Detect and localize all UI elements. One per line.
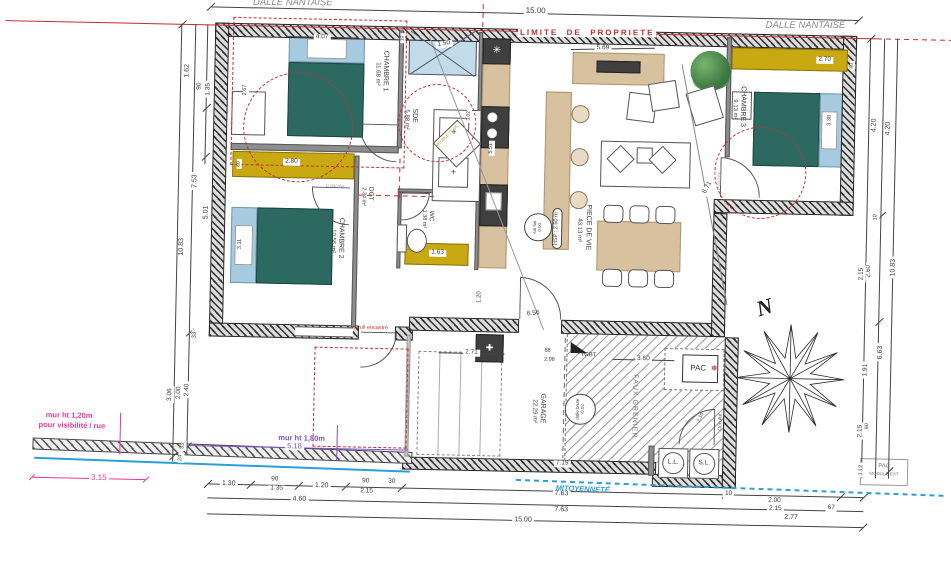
dim-line-right-mid xyxy=(875,39,885,479)
faucet-icon-2: + xyxy=(451,168,456,178)
dim-280-window: 2.80 xyxy=(283,159,300,166)
dim-right-420b: 4.20 xyxy=(884,120,892,138)
dim-left-1083: 10.83 xyxy=(178,236,186,258)
note-mur-120-line2: pour visibilité / rue xyxy=(38,421,105,430)
dim-bot-277: 2.77 xyxy=(782,514,800,522)
annotation-overlay: 15.00DALLE NANTAISELIMITE DE PROPRIETEDA… xyxy=(0,0,951,561)
dim-right-260: 2.60 xyxy=(866,263,873,280)
dim-208: 2.08 xyxy=(542,358,557,364)
dim-360: 3.60 xyxy=(635,356,652,363)
dim-569: 5.69 xyxy=(594,45,611,52)
room-wc-area: 1.38 m² xyxy=(420,210,426,229)
dim-60: 60 xyxy=(237,159,242,169)
tick xyxy=(201,152,210,161)
dim-270-window: 2.70 xyxy=(816,57,833,64)
tick xyxy=(202,103,211,112)
water-heater-icon: ✚ xyxy=(486,344,494,354)
note-pac: PAC xyxy=(690,364,706,373)
dim-719: 7.19 xyxy=(554,460,571,467)
dim-120-int: 1.20 xyxy=(476,289,483,305)
dim-top-1500: 15.00 xyxy=(524,7,548,16)
accessibility-circle-ch3 xyxy=(713,126,807,220)
room-chambre2-name: CHAMBRE 2 xyxy=(337,218,345,259)
note-portail: PORTAIL SECTIONNEL MOTORISE xyxy=(405,364,411,430)
dim-338: 3.38 xyxy=(827,113,833,128)
dim-right-215b: 2.15 xyxy=(857,423,864,440)
room-chambre1-area: 11.68 m² xyxy=(374,62,381,85)
dim-right-191: 1.91 xyxy=(863,362,870,379)
dim-right-663: 6.63 xyxy=(877,344,885,362)
room-dgt-area: 2.34 m² xyxy=(360,187,366,206)
dim-210-door: 2.10 xyxy=(697,412,706,423)
note-sol-fini: sol fini 0.00 xyxy=(524,213,553,242)
garage-grenier-split xyxy=(562,338,566,458)
dim-right-1083: 10.83 xyxy=(889,257,897,279)
room-chambre3-name: CHAMBRE 3 xyxy=(739,86,747,127)
dim-left-753: 7.53 xyxy=(191,172,199,190)
red-driveway-rect xyxy=(312,347,408,449)
tick xyxy=(875,318,884,327)
dim-line-right-inner xyxy=(861,38,871,478)
room-piece-de-vie-area: 43.13 m² xyxy=(576,218,583,242)
dryer-label: S.L. xyxy=(698,460,710,467)
dim-line-569 xyxy=(571,48,655,50)
pink-arrow xyxy=(119,413,121,455)
dim-302: 3.02 xyxy=(467,109,473,123)
pac-snowflake-icon: ❅ xyxy=(711,365,718,374)
room-sde-area: 5.88 m² xyxy=(403,109,410,129)
site-dalle-nantaise-left: DALLE NANTAISE xyxy=(253,0,333,8)
floor-plan-canvas: 15.00DALLE NANTAISELIMITE DE PROPRIETEDA… xyxy=(0,0,951,561)
note-tgbt: TGBT xyxy=(580,352,596,359)
red-service-line-v xyxy=(399,158,401,198)
dim-267: 2.67 xyxy=(243,83,249,98)
dim-bot-215r: 2.15 xyxy=(767,506,784,513)
faucet-icon-1: + xyxy=(451,128,456,138)
dim-271: 2.71 xyxy=(463,349,480,356)
dim-bot-67: 67 xyxy=(826,505,837,512)
pac-ext-label-1: PAC xyxy=(878,463,890,470)
dim-line-bottom-3 xyxy=(207,513,863,528)
dim-right-420a: 4.20 xyxy=(870,116,878,134)
north-letter: N xyxy=(754,294,776,321)
tick xyxy=(143,476,150,483)
dim-left-90: 90 xyxy=(196,81,203,92)
dim-right-112: 1.12 xyxy=(859,463,865,478)
dim-right-215: 2.15 xyxy=(859,266,866,283)
door-ref-ch2: P 80/204 xyxy=(326,184,344,189)
dim-left-162: 1.62 xyxy=(183,62,191,80)
dim-10-shower: 10 xyxy=(400,34,405,44)
room-chambre1-name: CHAMBRE 1 xyxy=(381,51,389,92)
room-faux-grenier-name: FAUX GRENIER xyxy=(630,374,639,438)
room-piece-de-vie-name: PIECE DE VIE xyxy=(584,204,592,250)
note-occulte: Occulté xyxy=(718,414,724,431)
dim-bot-763b: 7.63 xyxy=(552,506,570,514)
vmc-icon: ✳ xyxy=(492,46,501,57)
property-line xyxy=(5,20,877,40)
property-line-dash xyxy=(877,38,951,41)
dim-163-window: 1.63 xyxy=(429,250,446,257)
note-dalle-brute: dalle brute -0.02 xyxy=(565,393,597,425)
door-ref-ch3: P 80/204 xyxy=(718,172,723,190)
dim-bot-460: 4.60 xyxy=(290,496,308,504)
note-seuil-encastre: seuil encastré xyxy=(354,326,388,332)
pac-ext-label-2: MODULE EXT xyxy=(869,472,898,477)
dim-left-200: 2.00 xyxy=(176,384,183,401)
dim-left-306: 3.06 xyxy=(167,386,174,403)
dim-bot-1500: 15.00 xyxy=(512,516,534,524)
dim-bot-130: 1.30 xyxy=(220,480,238,488)
dim-right-90: 90 xyxy=(865,421,871,431)
dim-bot-30: 30 xyxy=(386,479,397,486)
dim-bot-215: 2.15 xyxy=(358,488,375,495)
dim-purple-518: 5.18 xyxy=(285,442,304,450)
note-hsp: HSP : 2.50 m xyxy=(552,208,563,249)
construction-diag-1 xyxy=(429,37,544,330)
dim-left-135: 1.35 xyxy=(205,81,212,98)
dim-bot-120: 1.20 xyxy=(313,482,331,490)
dim-left-501: 5.01 xyxy=(203,203,211,221)
room-dgt-name: DGT xyxy=(366,187,373,201)
room-chambre2-area: 10.56 m² xyxy=(329,229,336,253)
dim-88: 88 xyxy=(542,349,552,355)
dim-bot-135: 1.35 xyxy=(268,485,285,492)
dim-left-33: 33 xyxy=(192,330,199,341)
dim-right-10: 10 xyxy=(873,212,879,222)
dim-pink-315: 3.15 xyxy=(89,474,109,483)
dim-311: 3.11 xyxy=(238,237,244,251)
note-mur-120-line1: mur ht 1,20m xyxy=(46,411,93,420)
plan-rotated-wrapper: 15.00DALLE NANTAISELIMITE DE PROPRIETEDA… xyxy=(0,0,951,561)
dim-left-24: 24 xyxy=(178,453,184,463)
dim-left-240: 2.40 xyxy=(184,382,191,399)
room-garage-area: 22.29 m² xyxy=(531,399,538,423)
room-chambre3-area: 9.13 m² xyxy=(731,99,738,119)
site-dalle-nantaise-right: DALLE NANTAISE xyxy=(766,21,846,31)
dim-40: 40 xyxy=(850,61,855,71)
room-wc-name: WC xyxy=(427,211,434,222)
site-limite-de-propriete: LIMITE DE PROPRIETE xyxy=(518,29,656,38)
dim-bot-90a: 90 xyxy=(269,476,280,483)
room-garage-name: GARAGE xyxy=(538,393,546,423)
mitoyennete-line-left xyxy=(34,457,410,472)
room-sde-name: SDE xyxy=(411,108,419,123)
red-axis-top xyxy=(482,4,484,30)
dim-407: 4.07 xyxy=(314,34,331,41)
dim-left-33b: 33 xyxy=(180,441,186,451)
dim-551: 5.51 xyxy=(489,141,495,156)
dim-bot-10: 10 xyxy=(723,491,734,498)
washer-label: L.L. xyxy=(668,460,679,467)
dim-bot-90b: 90 xyxy=(360,478,371,485)
